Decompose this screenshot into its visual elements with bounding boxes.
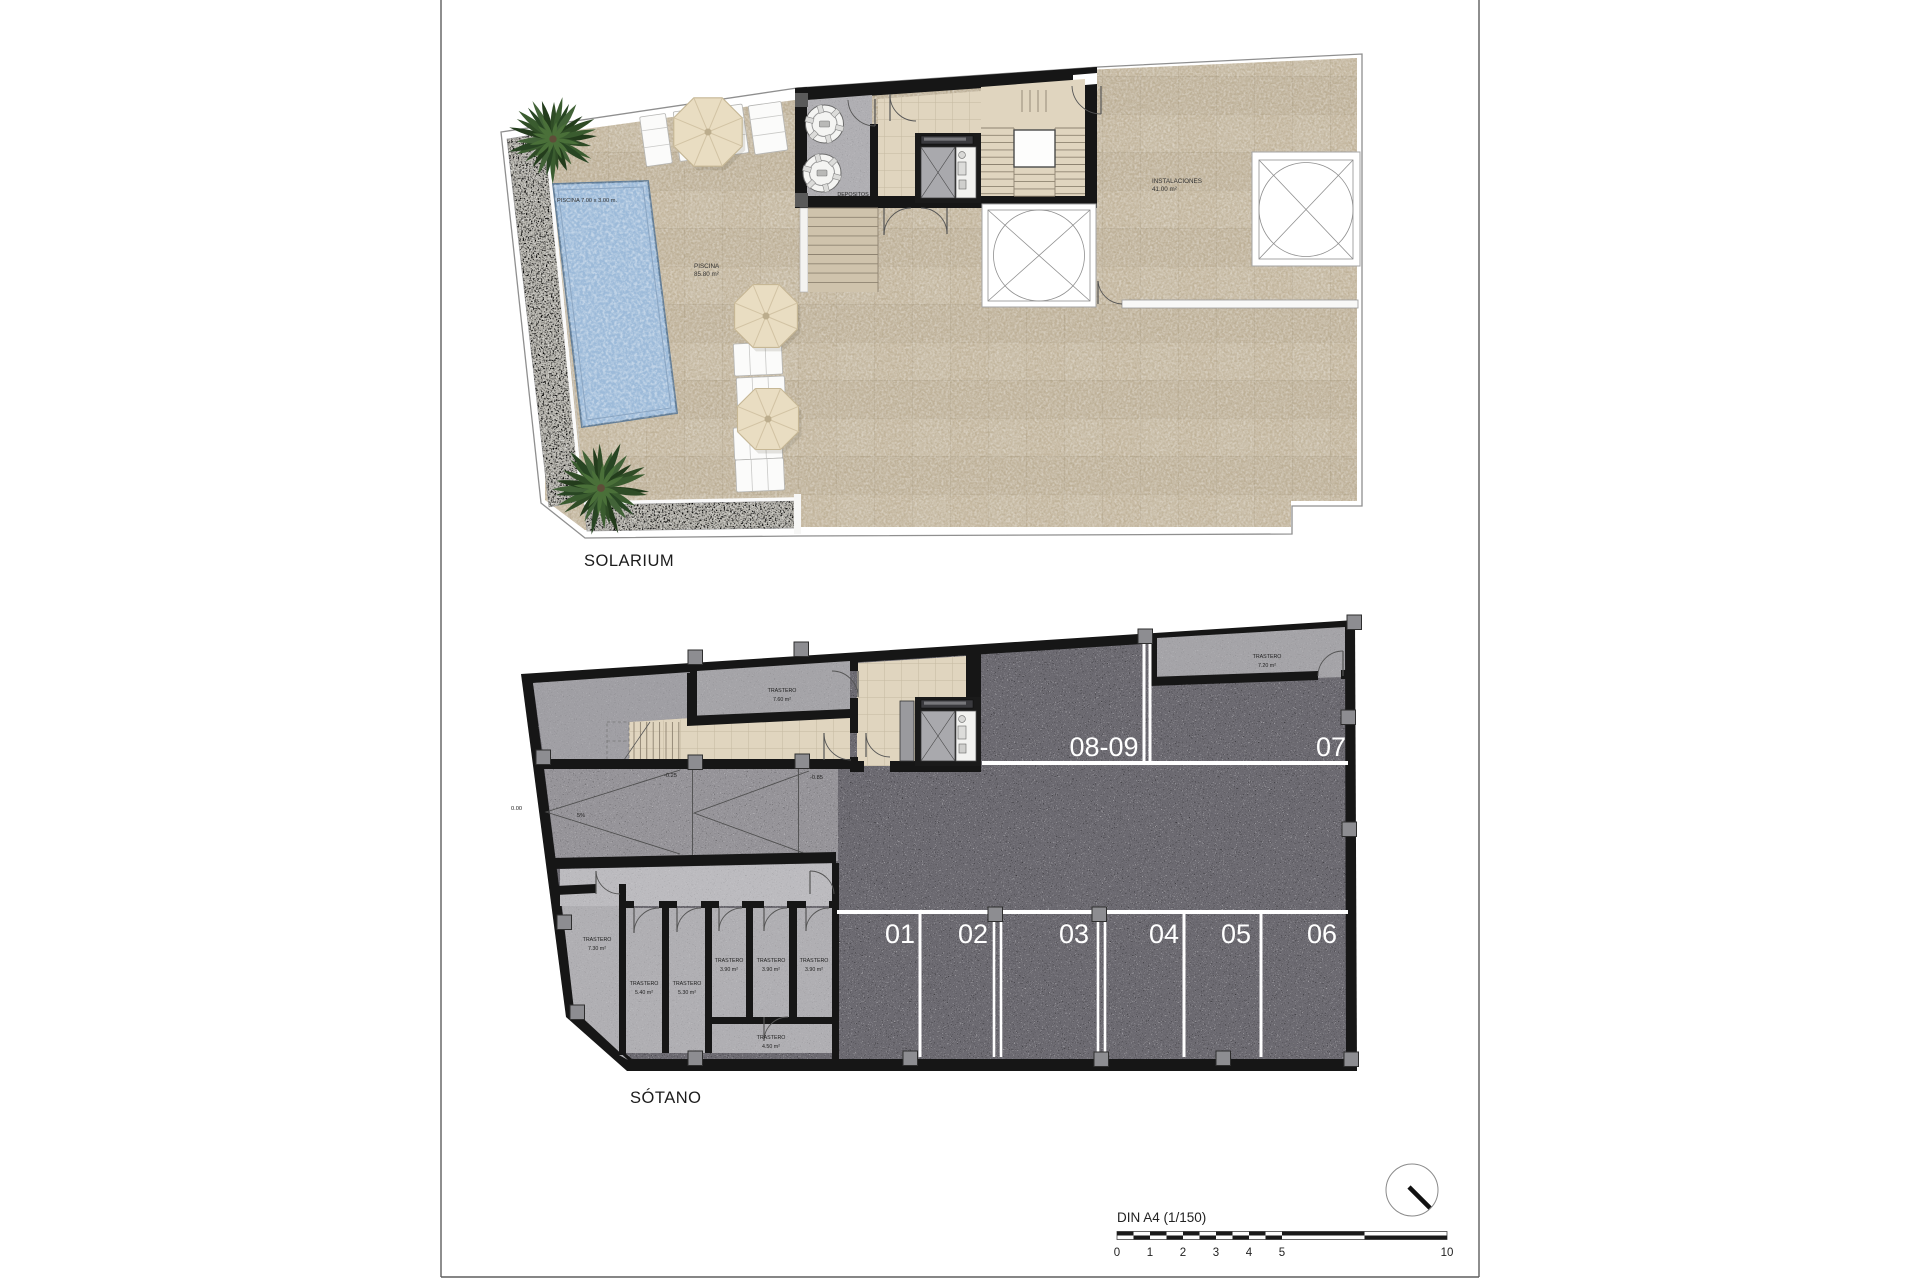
svg-text:0.00: 0.00 [511,806,522,812]
svg-text:3.90 m²: 3.90 m² [762,967,780,973]
svg-text:TRASTERO: TRASTERO [757,1035,786,1041]
svg-text:4.50 m²: 4.50 m² [762,1044,780,1050]
svg-text:SÓTANO: SÓTANO [630,1088,701,1107]
svg-text:SOLARIUM: SOLARIUM [584,552,674,570]
svg-text:7.60 m²: 7.60 m² [773,697,791,703]
svg-text:01: 01 [885,919,915,949]
svg-text:1: 1 [1147,1247,1153,1259]
svg-text:03: 03 [1059,919,1089,949]
svg-text:2: 2 [1180,1247,1186,1259]
svg-text:PISCINA: PISCINA [694,263,720,270]
svg-text:3: 3 [1213,1247,1219,1259]
svg-text:TRASTERO: TRASTERO [768,688,797,694]
svg-text:5.30 m²: 5.30 m² [678,990,696,996]
svg-text:7.20 m²: 7.20 m² [1258,663,1276,669]
svg-text:TRASTERO: TRASTERO [630,981,659,987]
svg-text:3.90 m²: 3.90 m² [805,967,823,973]
svg-text:02: 02 [958,919,988,949]
svg-text:TRASTERO: TRASTERO [800,958,829,964]
svg-text:07: 07 [1316,732,1346,762]
svg-text:4: 4 [1246,1247,1253,1259]
svg-text:08-09: 08-09 [1069,732,1138,762]
svg-text:0: 0 [1114,1247,1120,1259]
svg-text:TRASTERO: TRASTERO [1253,654,1282,660]
svg-text:10: 10 [1441,1247,1454,1259]
svg-text:TRASTERO: TRASTERO [583,937,612,943]
svg-text:DEPOSITOS: DEPOSITOS [837,192,869,198]
svg-text:04: 04 [1149,919,1179,949]
svg-text:41.00 m²: 41.00 m² [1152,186,1177,193]
svg-text:5.40 m²: 5.40 m² [635,990,653,996]
svg-text:5: 5 [1279,1247,1285,1259]
svg-text:TRASTERO: TRASTERO [715,958,744,964]
svg-text:TRASTERO: TRASTERO [757,958,786,964]
svg-text:5%: 5% [577,813,585,819]
svg-text:85.80 m²: 85.80 m² [694,271,719,278]
svg-text:INSTALACIONES: INSTALACIONES [1152,178,1202,185]
svg-text:-0.85: -0.85 [810,775,823,781]
svg-text:-0.25: -0.25 [664,773,677,779]
svg-text:TRASTERO: TRASTERO [673,981,702,987]
svg-text:7.30 m²: 7.30 m² [588,946,606,952]
svg-text:PISCINA 7.00 x 3.00 m.: PISCINA 7.00 x 3.00 m. [557,198,617,204]
svg-text:3.90 m²: 3.90 m² [720,967,738,973]
svg-text:06: 06 [1307,919,1337,949]
svg-text:DIN A4 (1/150): DIN A4 (1/150) [1117,1210,1206,1225]
svg-text:05: 05 [1221,919,1251,949]
